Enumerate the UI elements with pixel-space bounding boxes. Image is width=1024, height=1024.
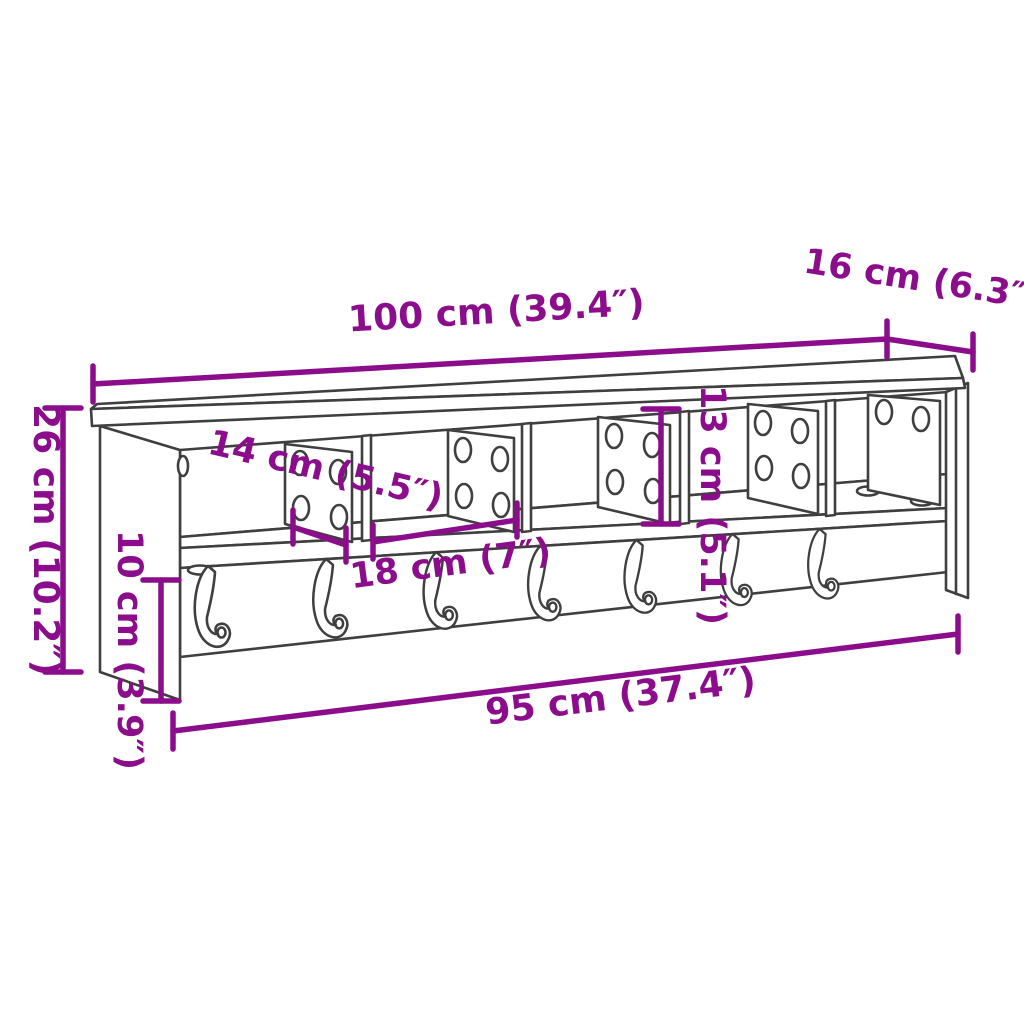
divider-face-5 [868, 395, 940, 505]
divider-edge-4 [826, 400, 835, 516]
dim-label-total-height: 26 cm (10.2″) [25, 404, 66, 676]
divider-face-4 [748, 404, 818, 514]
right-side-panel [946, 383, 968, 598]
dimension-total-height: 26 cm (10.2″) [25, 404, 81, 676]
divider-edge-2 [522, 423, 531, 532]
dim-label-total-width: 100 cm (39.4″) [347, 283, 646, 341]
divider-face-2 [448, 430, 514, 532]
dim-label-total-depth: 16 cm (6.3″) [801, 242, 1024, 319]
dim-label-lower-section-height: 10 cm (3.9″) [109, 530, 149, 770]
divider-edge-3 [680, 411, 689, 524]
dim-label-compartment-height: 13 cm (5.1″) [692, 385, 732, 625]
dimension-total-depth: 16 cm (6.3″) [801, 242, 1024, 370]
product-dimension-diagram: 100 cm (39.4″) 16 cm (6.3″) 26 cm (10.2″… [0, 0, 1024, 1024]
dim-label-bottom-width: 95 cm (37.4″) [483, 660, 758, 734]
diagram-canvas: 100 cm (39.4″) 16 cm (6.3″) 26 cm (10.2″… [0, 0, 1024, 1024]
